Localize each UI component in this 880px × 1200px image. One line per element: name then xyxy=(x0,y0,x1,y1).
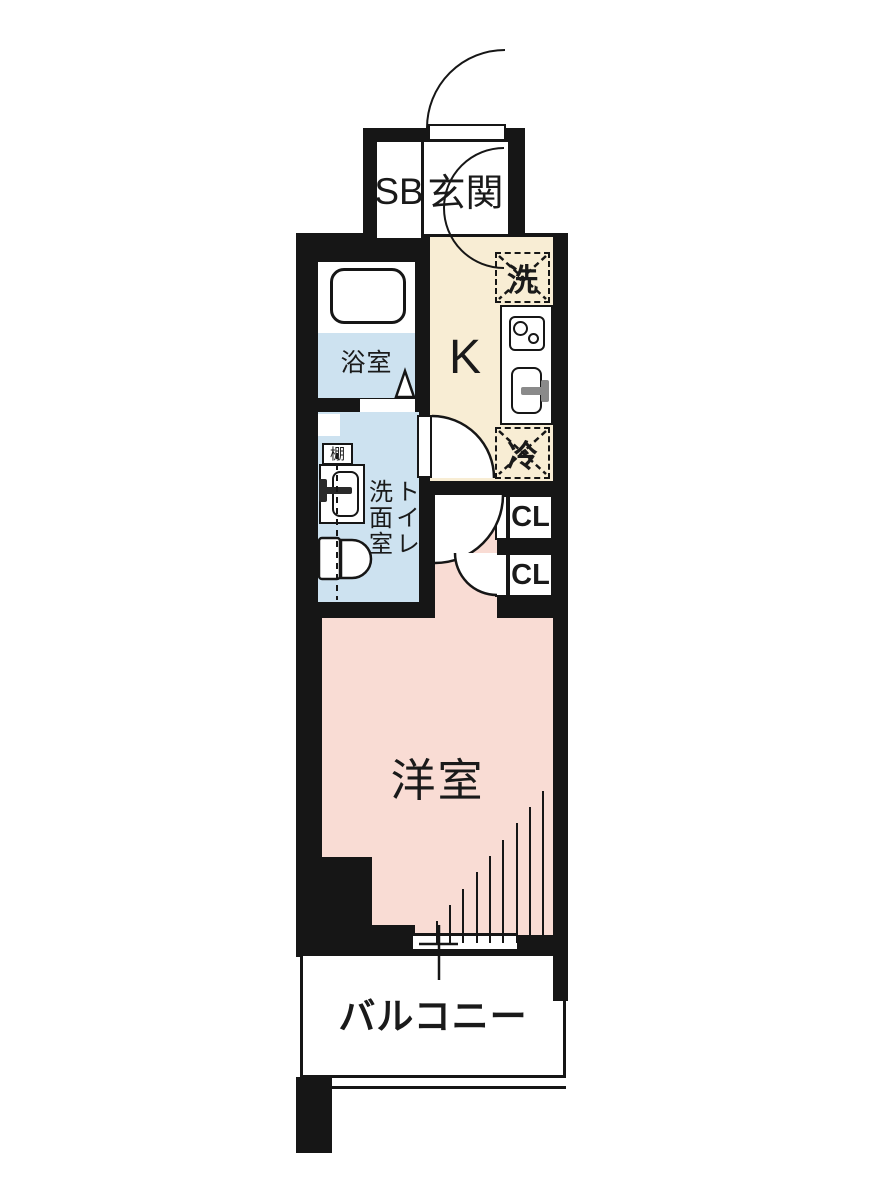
closet-lower-label: CL xyxy=(508,553,553,597)
kitchen-sink-icon xyxy=(511,367,542,414)
western-room-label: 洋室 xyxy=(322,748,553,804)
fridge-label: 冷 xyxy=(495,430,550,476)
entrance-label: 玄関 xyxy=(423,164,508,214)
balcony-window xyxy=(413,933,517,952)
pipe-space xyxy=(318,414,340,436)
shelf-label: 棚 xyxy=(322,443,353,463)
balcony-left-column xyxy=(296,1077,332,1153)
stove-burner-small-icon xyxy=(528,333,539,344)
balcony-label: バルコニー xyxy=(300,991,566,1035)
washer-label: 洗 xyxy=(495,255,550,300)
corridor-area xyxy=(435,495,497,618)
entrance-door-arc-outer xyxy=(427,50,505,128)
kitchen-label: K xyxy=(430,330,500,384)
closet-upper-label: CL xyxy=(508,495,553,540)
washroom-label-washroom: 洗面室 xyxy=(363,463,393,573)
wash-basin-icon xyxy=(332,471,359,517)
room-pillar-foot xyxy=(322,925,415,953)
bathtub-icon xyxy=(330,268,406,324)
shoebox-label: SB xyxy=(377,148,421,236)
bathroom-door-opening xyxy=(360,399,415,413)
closet-lower-door xyxy=(495,553,508,597)
closet-upper-door xyxy=(495,495,508,540)
entrance-door-leaf xyxy=(428,124,506,141)
bathroom-label: 浴室 xyxy=(318,345,415,377)
stove-burner-large-icon xyxy=(513,321,528,336)
balcony-outer-line xyxy=(332,1086,566,1089)
floor-plan: SB 玄関 K 浴室 トイレ 洗面室 棚 洗 冷 CL CL 洋室 バルコニー xyxy=(0,0,880,1200)
